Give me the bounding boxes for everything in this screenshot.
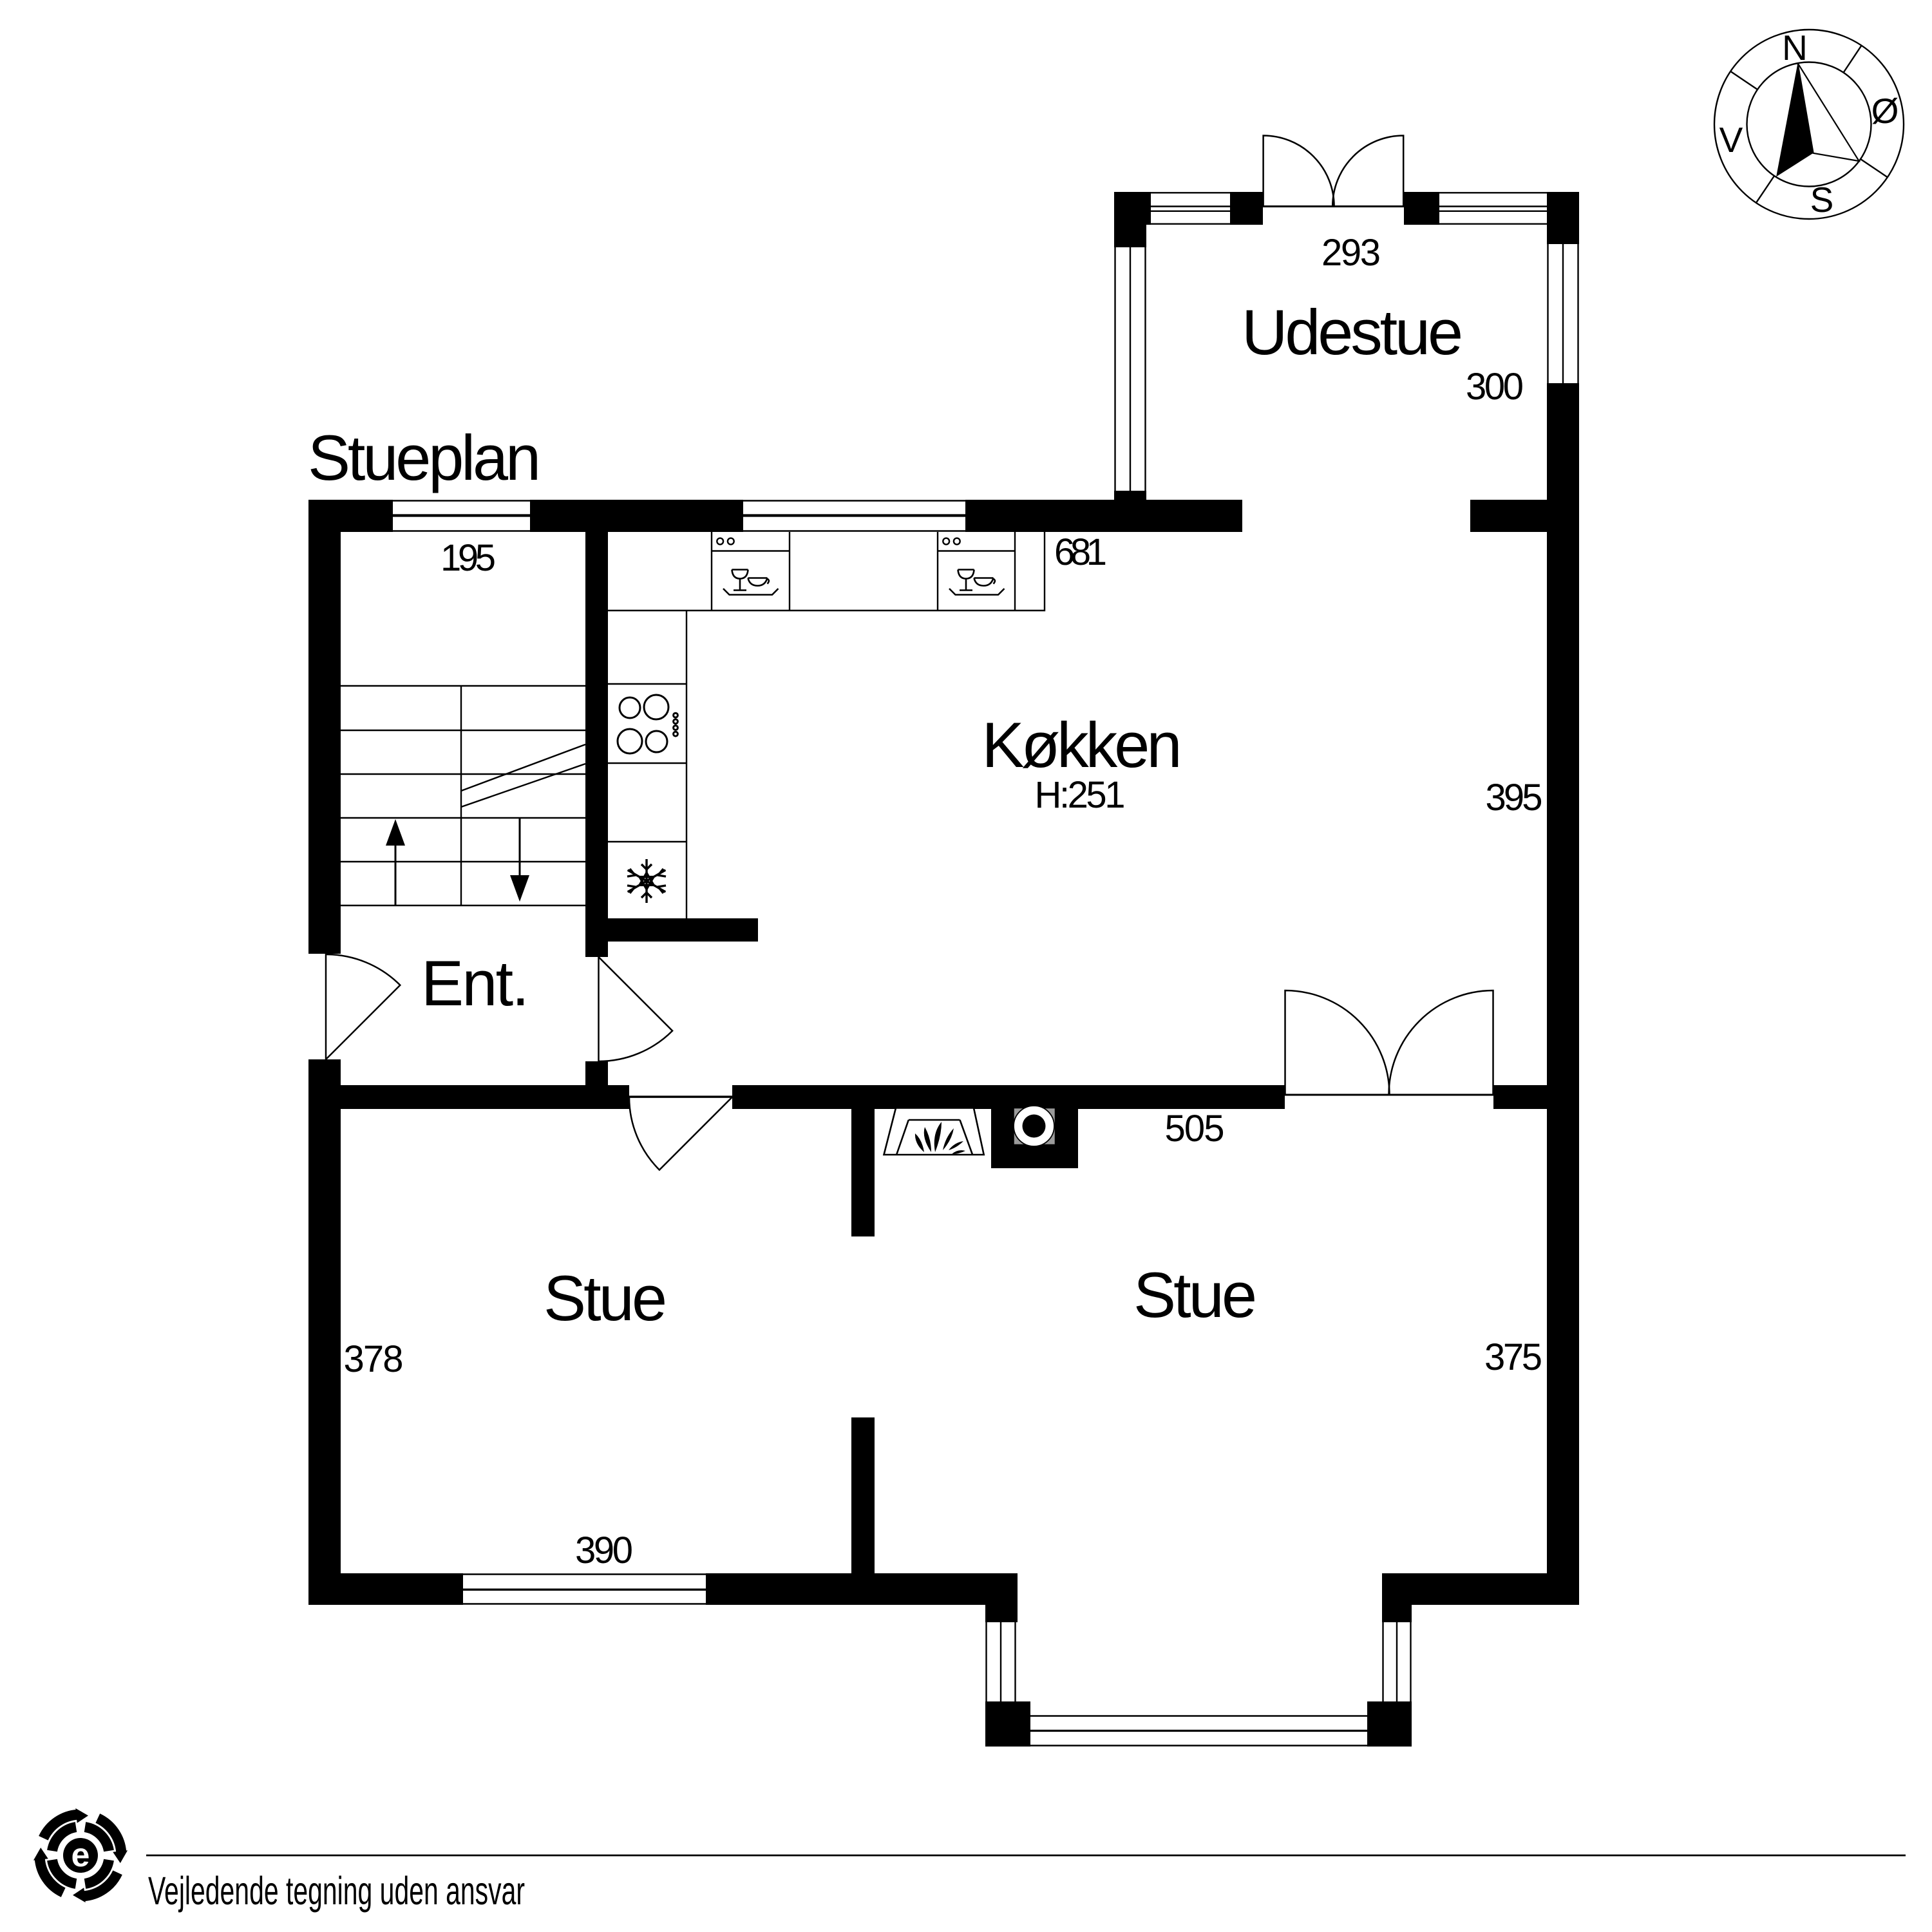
svg-text:375: 375 [1484,1336,1542,1378]
svg-text:S: S [1810,180,1834,220]
svg-text:Ø: Ø [1871,91,1899,131]
svg-text:N: N [1782,28,1808,68]
svg-text:Udestue: Udestue [1242,296,1463,368]
svg-text:Ent.: Ent. [421,947,529,1019]
svg-text:390: 390 [575,1529,633,1571]
svg-text:300: 300 [1466,366,1524,408]
svg-text:Stueplan: Stueplan [308,422,541,493]
svg-text:H:251: H:251 [1035,774,1126,816]
svg-text:Stue: Stue [1133,1259,1257,1331]
svg-text:195: 195 [440,537,496,579]
svg-text:Vejledende tegning uden ansvar: Vejledende tegning uden ansvar [148,1869,525,1913]
svg-text:e: e [71,1837,90,1874]
svg-text:378: 378 [344,1338,404,1380]
svg-text:Stue: Stue [544,1262,667,1334]
svg-text:395: 395 [1486,777,1543,819]
svg-text:293: 293 [1321,232,1381,274]
svg-text:681: 681 [1054,531,1107,573]
svg-text:Køkken: Køkken [982,709,1182,781]
svg-text:505: 505 [1165,1108,1225,1150]
svg-text:V: V [1719,120,1743,160]
